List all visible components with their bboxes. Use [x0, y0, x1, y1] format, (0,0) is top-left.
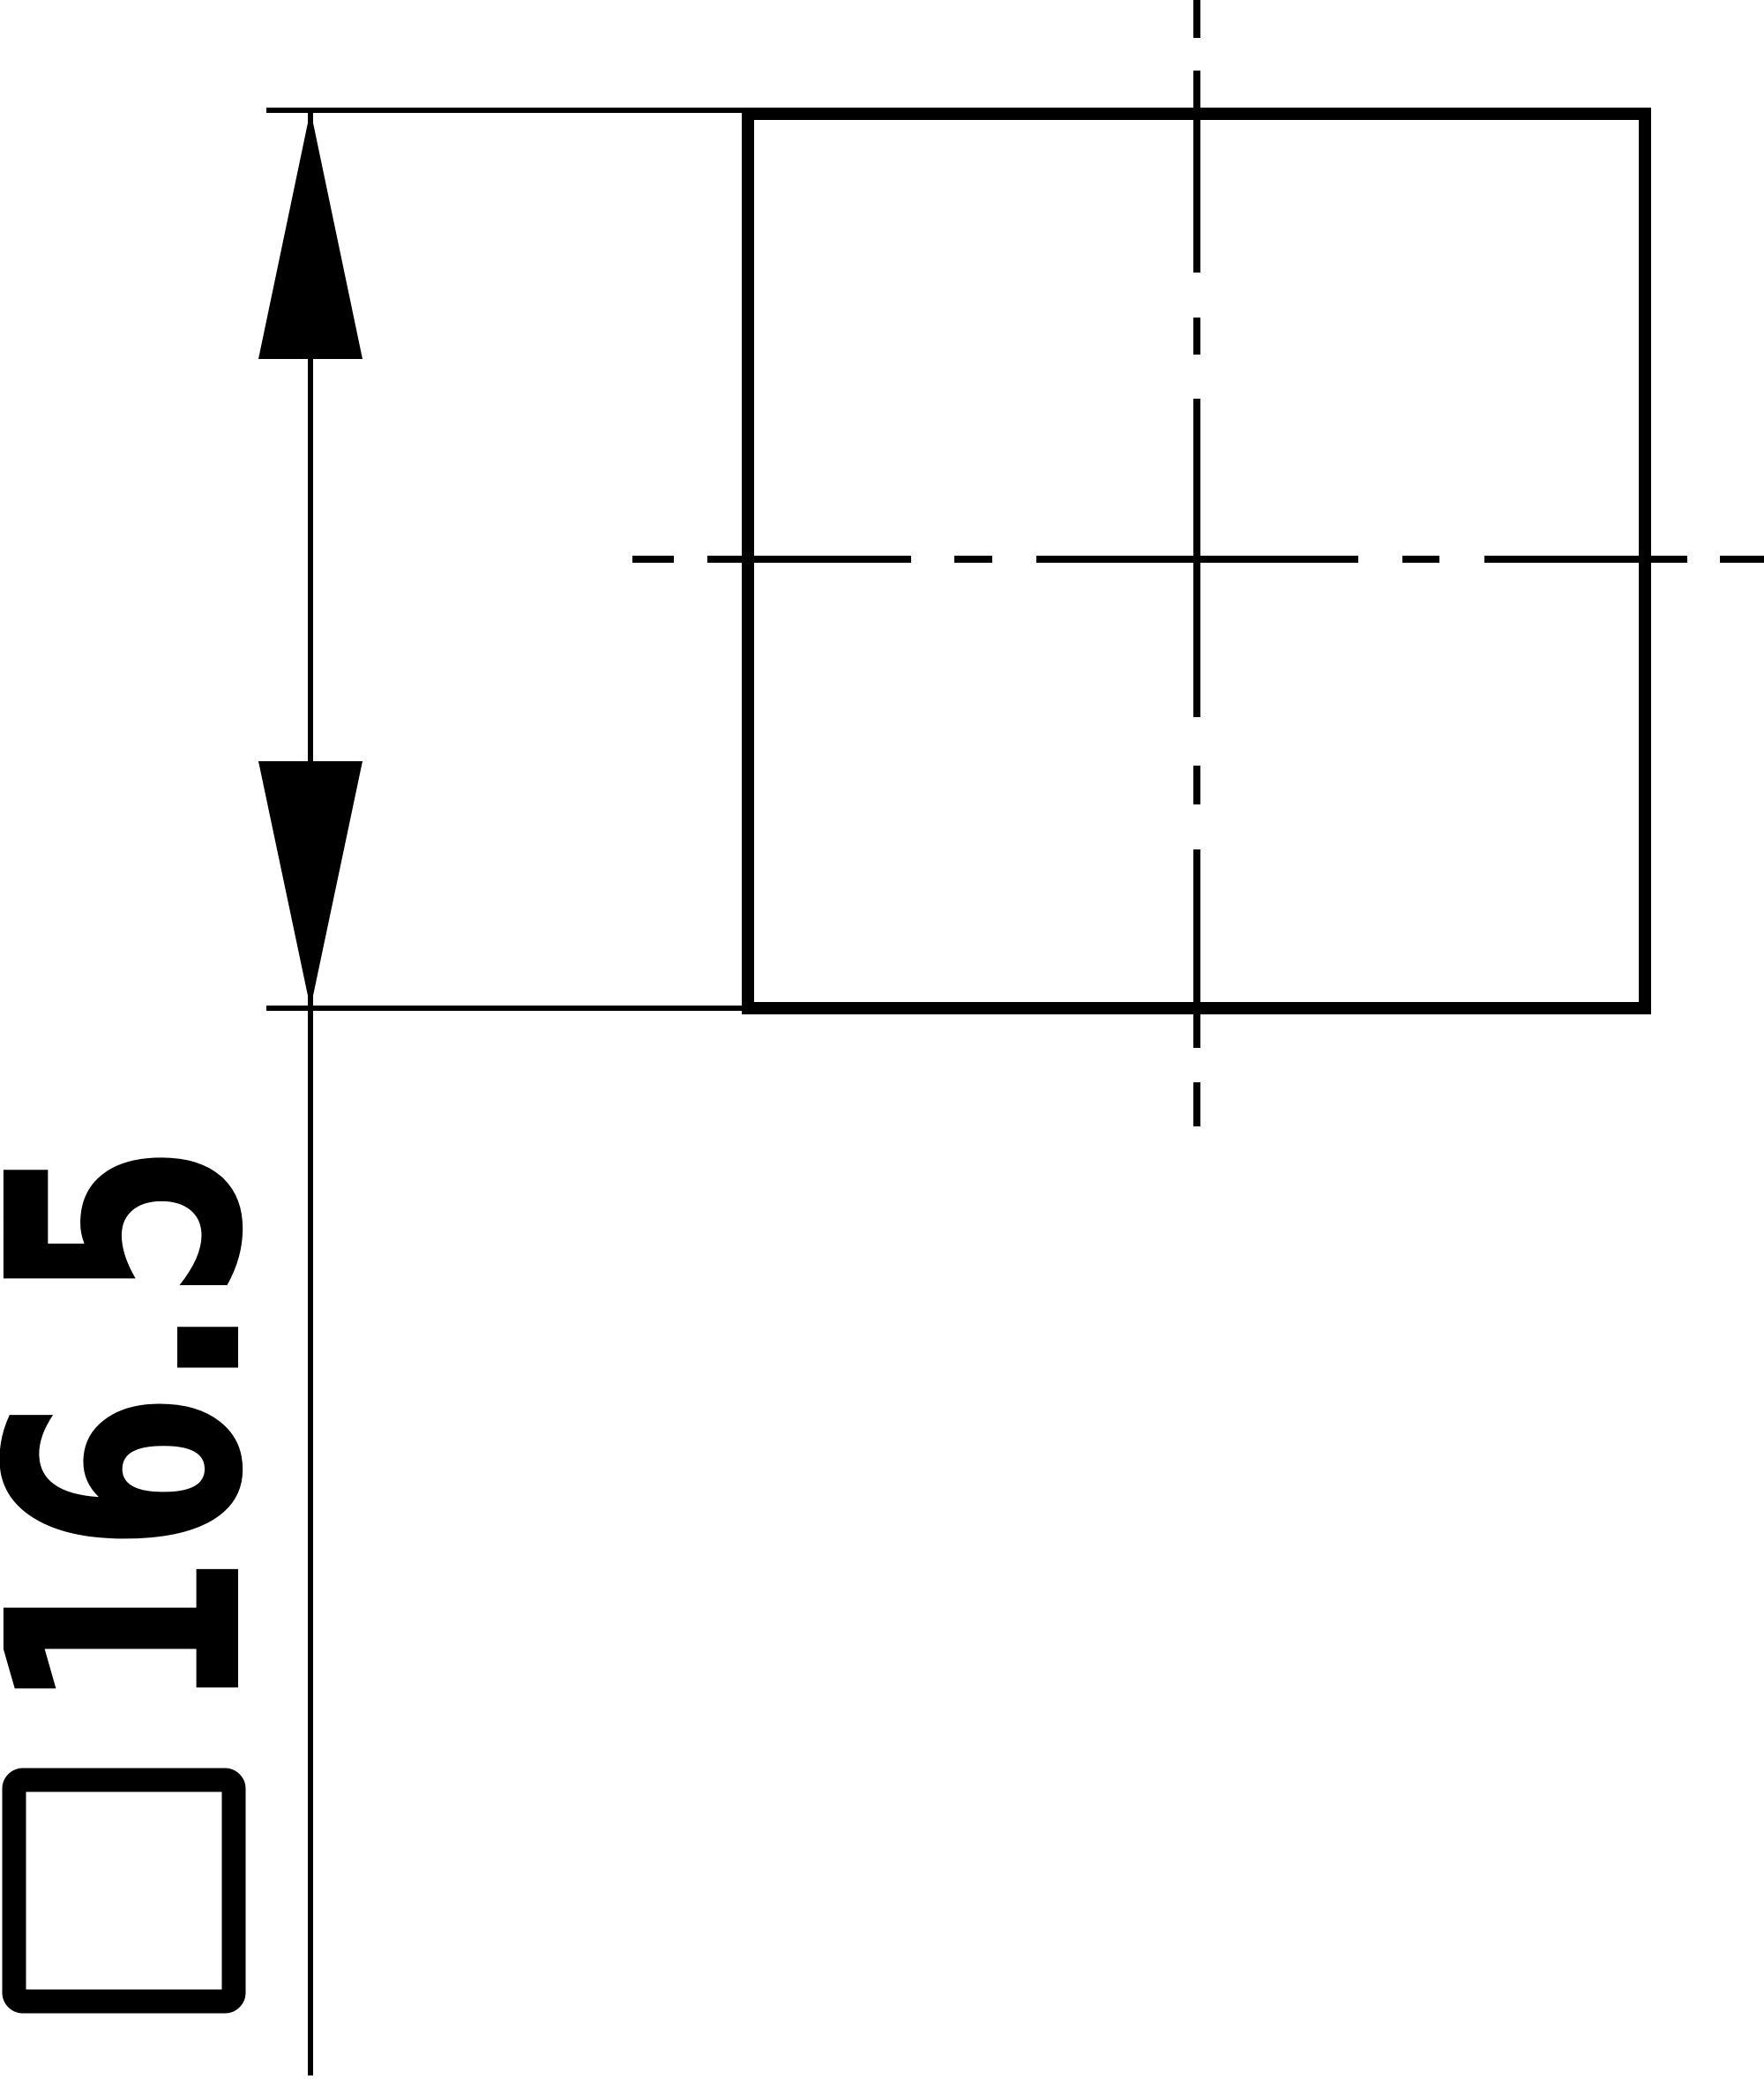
- dimension-text: 16.5: [0, 1141, 315, 1715]
- dimension-arrow-down: [258, 761, 363, 1008]
- technical-drawing-canvas: 16.5: [0, 0, 1764, 2079]
- drawing-page: 16.5: [0, 0, 1764, 2079]
- dimension-arrow-up: [258, 110, 363, 359]
- square-symbol: [14, 1780, 234, 2001]
